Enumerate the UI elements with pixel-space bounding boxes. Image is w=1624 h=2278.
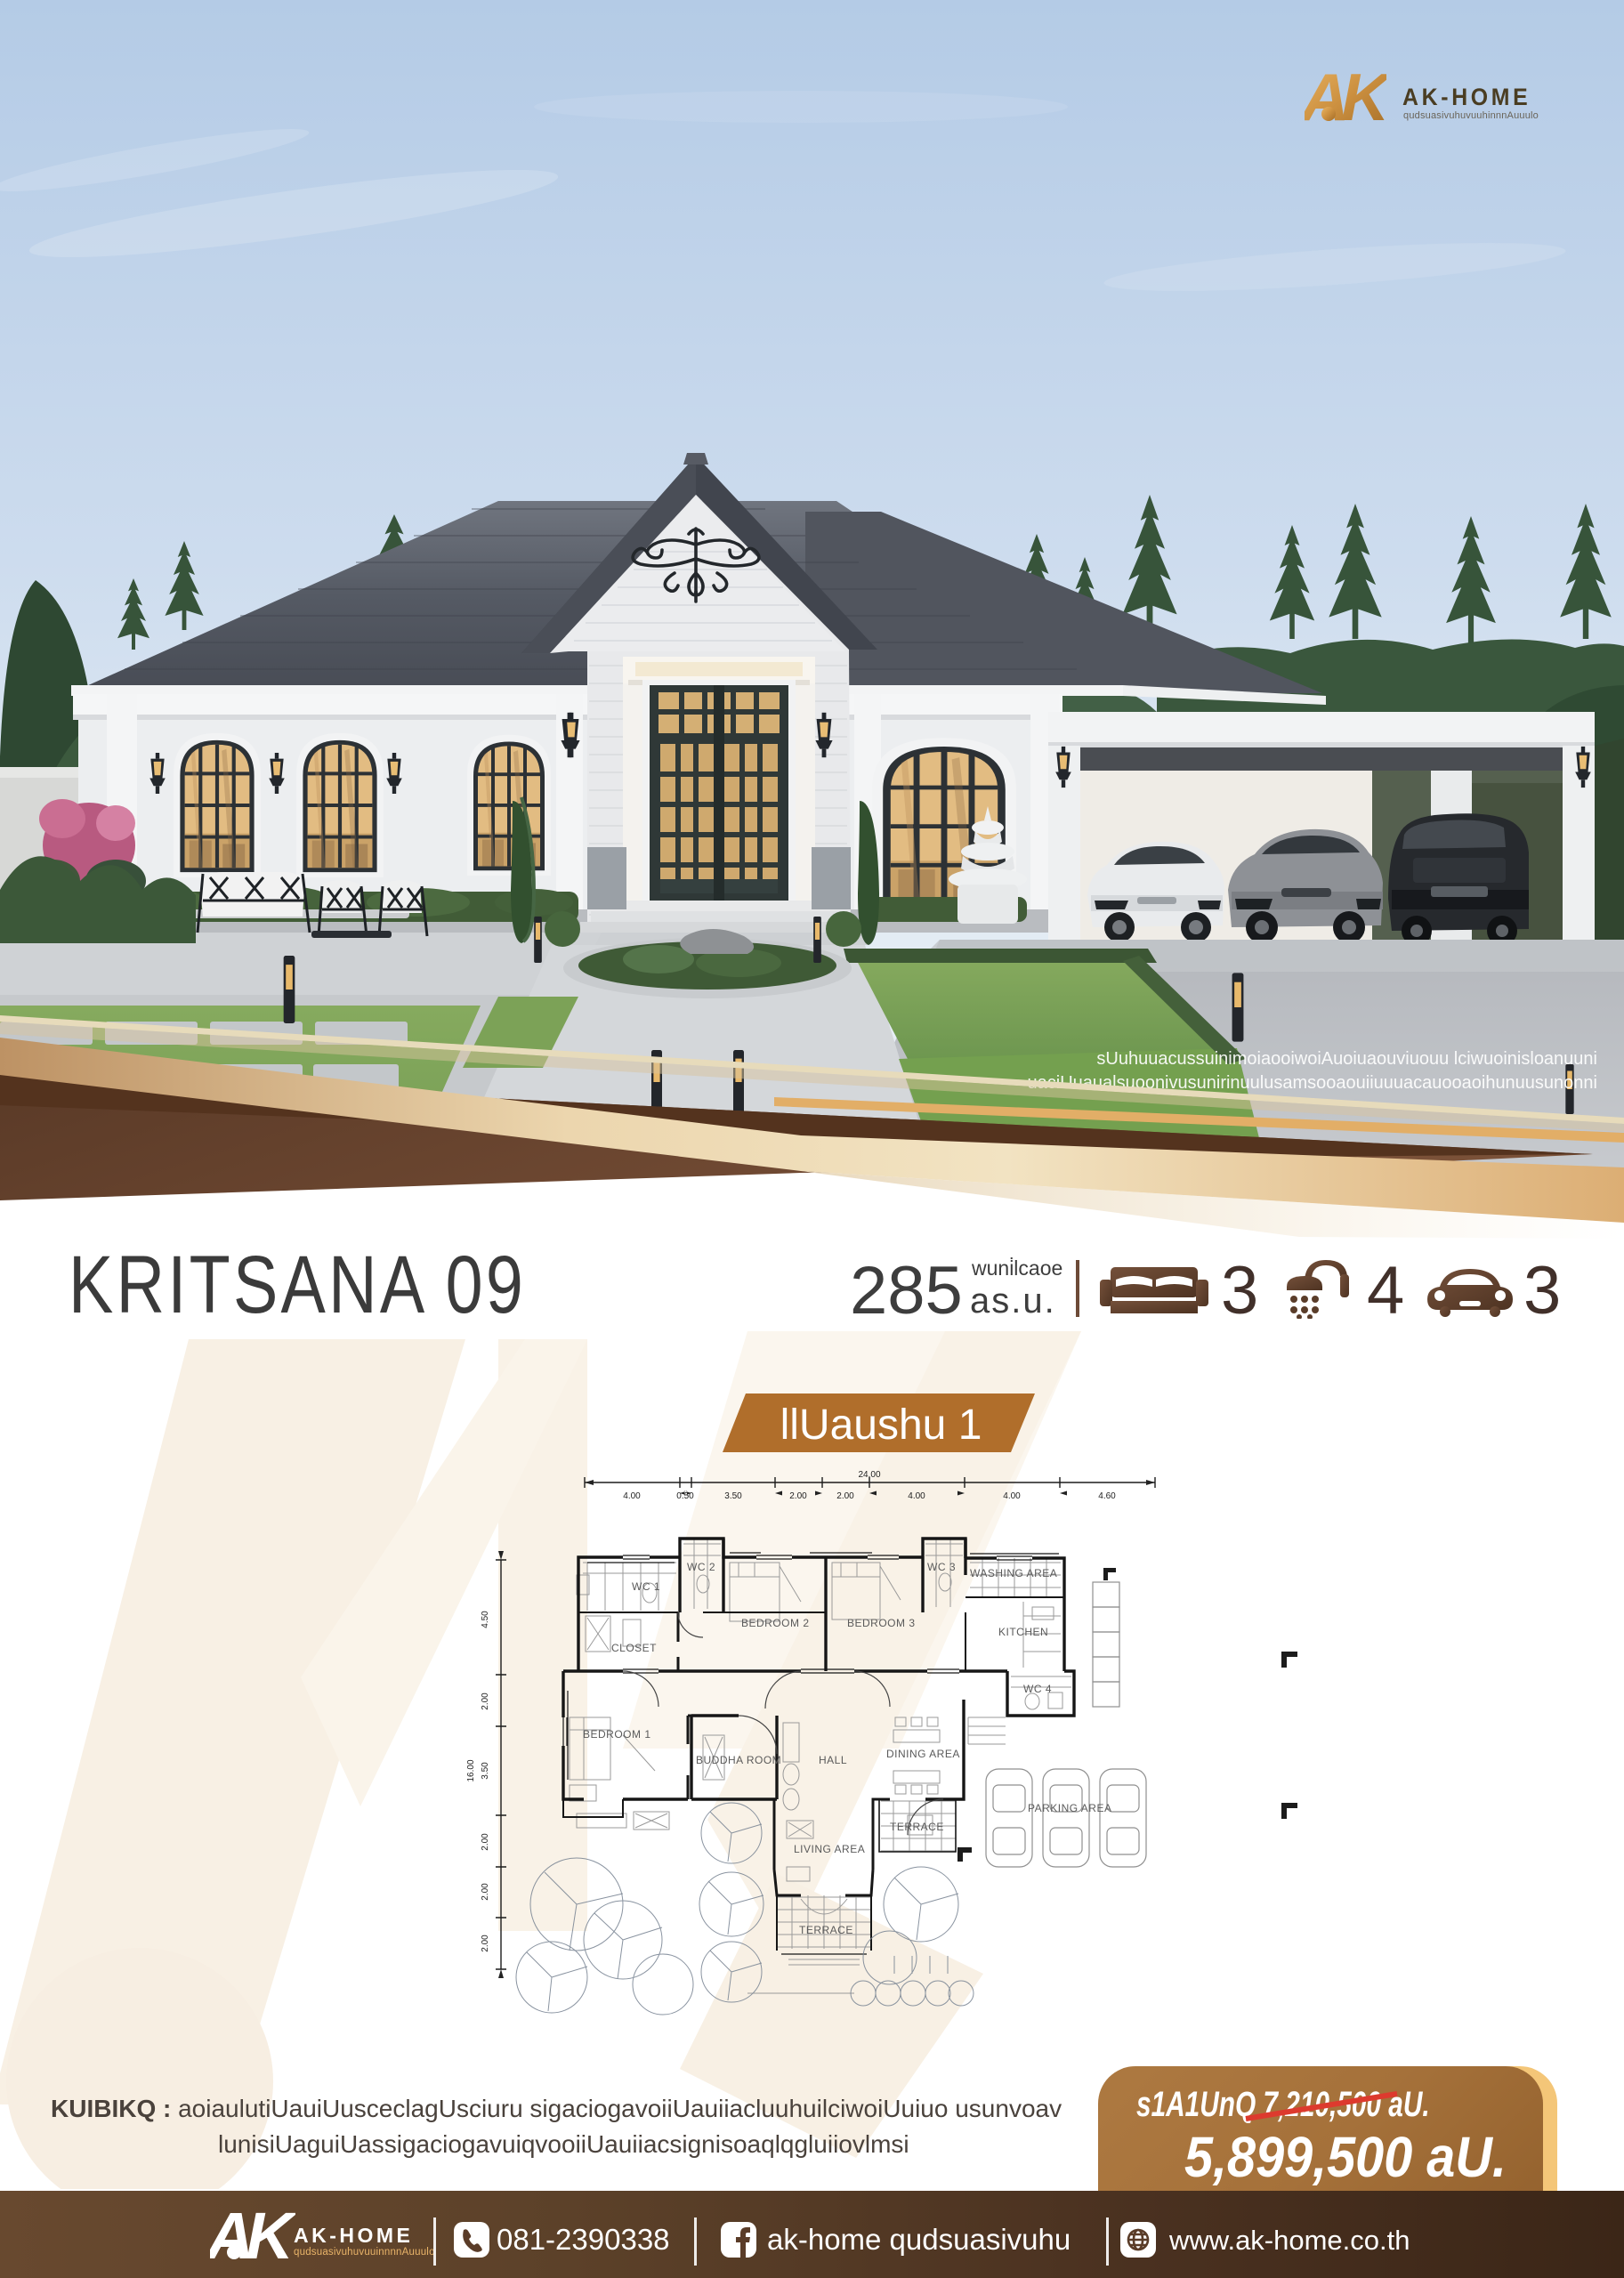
- svg-text:DINING AREA: DINING AREA: [886, 1748, 960, 1760]
- svg-text:BEDROOM 1: BEDROOM 1: [583, 1728, 651, 1741]
- svg-text:0.50: 0.50: [676, 1491, 694, 1501]
- svg-text:WC 3: WC 3: [927, 1561, 956, 1573]
- svg-text:WC 1: WC 1: [632, 1580, 660, 1593]
- svg-text:CLOSET: CLOSET: [611, 1642, 657, 1654]
- svg-text:LIVING AREA: LIVING AREA: [794, 1843, 865, 1855]
- svg-text:BEDROOM 2: BEDROOM 2: [741, 1617, 810, 1629]
- svg-text:3.50: 3.50: [724, 1491, 742, 1501]
- svg-text:HALL: HALL: [819, 1754, 847, 1766]
- svg-text:WC 4: WC 4: [1023, 1683, 1052, 1695]
- svg-text:BUDDHA ROOM: BUDDHA ROOM: [696, 1754, 781, 1766]
- svg-text:2.00: 2.00: [789, 1491, 807, 1501]
- svg-text:24.00: 24.00: [858, 1470, 880, 1480]
- svg-text:llUaushu 1: llUaushu 1: [780, 1402, 982, 1449]
- svg-text:2.00: 2.00: [481, 1692, 490, 1710]
- svg-text:4.00: 4.00: [1003, 1491, 1021, 1501]
- svg-text:WASHING AREA: WASHING AREA: [970, 1567, 1057, 1579]
- svg-text:4.60: 4.60: [1098, 1491, 1116, 1501]
- svg-text:3.50: 3.50: [481, 1762, 490, 1780]
- svg-text:PARKING AREA: PARKING AREA: [1028, 1802, 1111, 1814]
- svg-text:2.00: 2.00: [836, 1491, 854, 1501]
- svg-text:KITCHEN: KITCHEN: [998, 1626, 1048, 1638]
- svg-text:AK: AK: [1305, 71, 1386, 126]
- svg-text:TERRACE: TERRACE: [799, 1924, 853, 1936]
- svg-text:4.50: 4.50: [481, 1611, 490, 1628]
- svg-text:16.00: 16.00: [466, 1759, 476, 1781]
- svg-text:2.00: 2.00: [481, 1833, 490, 1851]
- svg-text:WC 2: WC 2: [687, 1561, 715, 1573]
- svg-text:4.00: 4.00: [908, 1491, 925, 1501]
- svg-text:2.00: 2.00: [481, 1935, 490, 1952]
- svg-text:4.00: 4.00: [623, 1491, 641, 1501]
- svg-text:2.00: 2.00: [481, 1883, 490, 1901]
- svg-text:BEDROOM 3: BEDROOM 3: [847, 1617, 916, 1629]
- svg-text:TERRACE: TERRACE: [890, 1821, 944, 1833]
- svg-text:AK: AK: [210, 2210, 295, 2264]
